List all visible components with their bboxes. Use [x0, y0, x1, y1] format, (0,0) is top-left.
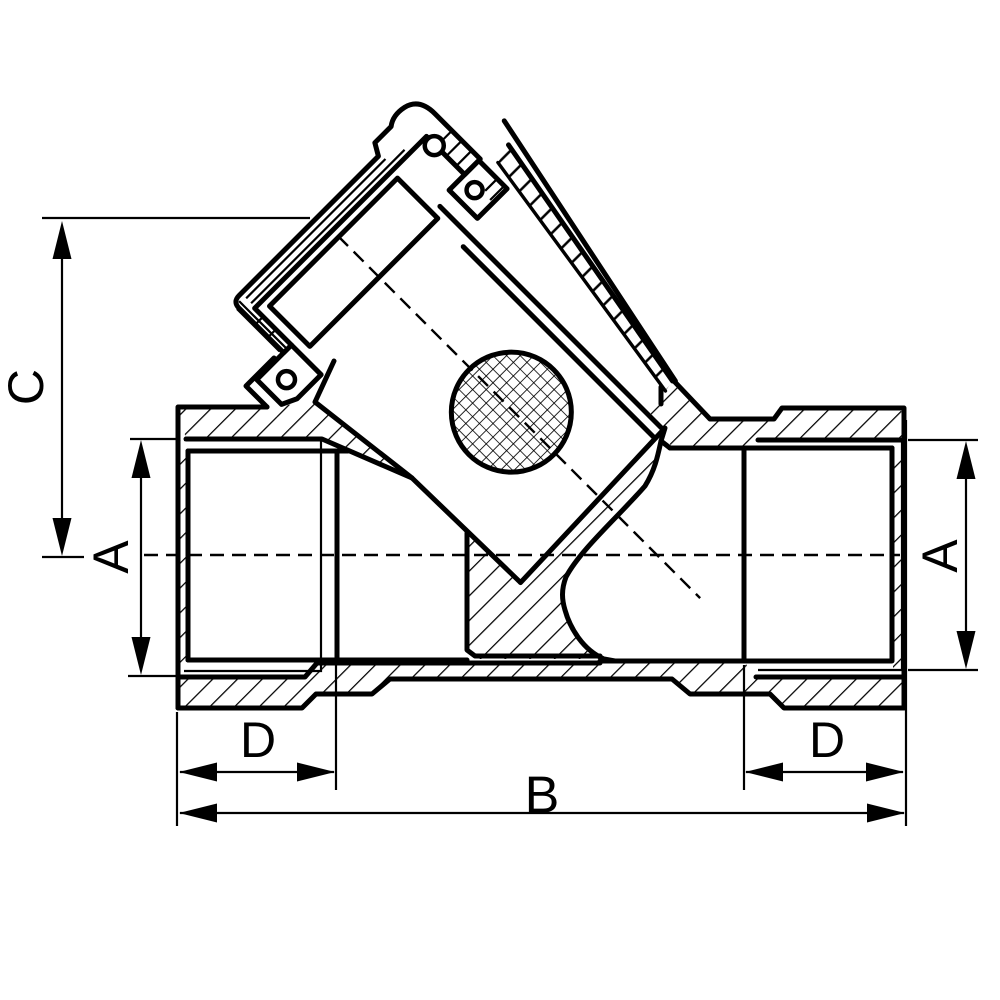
svg-text:C: C: [0, 369, 54, 405]
svg-text:D: D: [809, 712, 845, 768]
svg-text:D: D: [240, 712, 276, 768]
svg-text:A: A: [912, 539, 968, 573]
svg-text:A: A: [83, 540, 139, 574]
svg-text:B: B: [525, 767, 560, 825]
